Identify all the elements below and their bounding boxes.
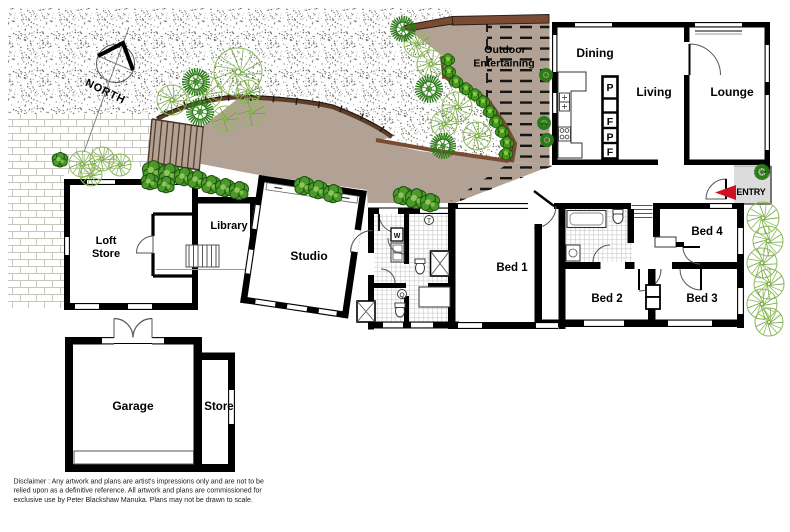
svg-text:Store: Store <box>92 248 120 260</box>
svg-text:T: T <box>427 218 431 225</box>
svg-text:Outdoor: Outdoor <box>484 44 525 56</box>
svg-text:Library: Library <box>210 220 248 232</box>
svg-text:W: W <box>394 233 401 240</box>
svg-text:P: P <box>606 82 613 94</box>
svg-text:Garage: Garage <box>112 399 154 413</box>
svg-text:Lounge: Lounge <box>710 85 754 99</box>
svg-text:Disclaimer : Any artwork and p: Disclaimer : Any artwork and plans are a… <box>14 479 264 486</box>
svg-text:relied upon as a definitive re: relied upon as a definitive reference. A… <box>14 488 263 495</box>
svg-text:F: F <box>607 116 614 128</box>
svg-text:Dining: Dining <box>576 46 613 60</box>
svg-text:Living: Living <box>636 85 671 99</box>
svg-text:Loft: Loft <box>96 235 117 247</box>
svg-text:Entertaining: Entertaining <box>473 58 534 70</box>
svg-text:F: F <box>607 147 614 159</box>
svg-text:ENTRY: ENTRY <box>736 187 765 197</box>
svg-text:Q: Q <box>399 292 404 299</box>
svg-text:Bed 3: Bed 3 <box>686 293 717 305</box>
svg-text:exclusive use by Peter Blacksh: exclusive use by Peter Blackshaw Manuka.… <box>14 497 253 504</box>
svg-text:Bed 2: Bed 2 <box>591 293 622 305</box>
svg-text:Bed 4: Bed 4 <box>691 226 723 238</box>
svg-text:Studio: Studio <box>290 249 327 263</box>
svg-text:Store: Store <box>204 401 233 413</box>
svg-text:Bed 1: Bed 1 <box>496 262 528 274</box>
svg-text:P: P <box>606 132 613 144</box>
